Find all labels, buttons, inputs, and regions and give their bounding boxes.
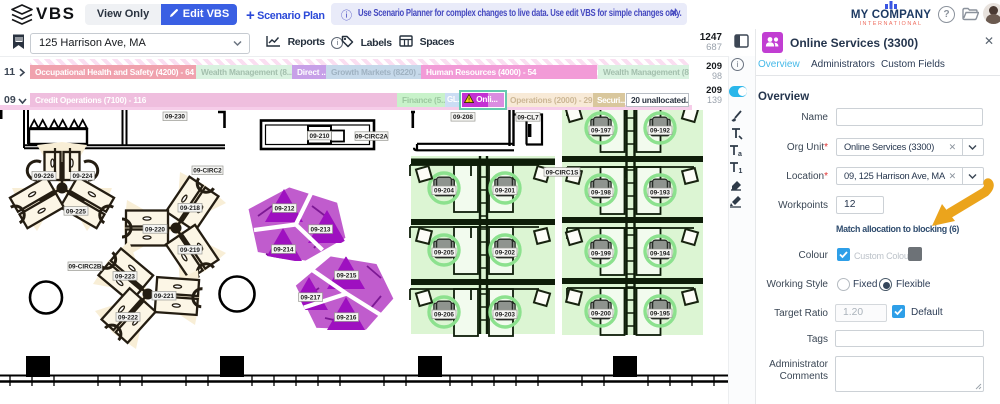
svg-text:09-201: 09-201 — [495, 188, 515, 195]
svg-text:09-226: 09-226 — [34, 173, 54, 180]
svg-text:09-198: 09-198 — [591, 190, 611, 197]
svg-text:09-CIRC2B: 09-CIRC2B — [68, 264, 101, 271]
svg-text:09-224: 09-224 — [73, 173, 93, 180]
svg-text:09-230: 09-230 — [165, 114, 185, 121]
svg-text:09-192: 09-192 — [650, 128, 670, 135]
svg-text:09-202: 09-202 — [495, 250, 515, 257]
svg-text:09-204: 09-204 — [434, 188, 454, 195]
svg-text:09-222: 09-222 — [118, 314, 138, 321]
svg-text:a: a — [738, 151, 742, 157]
svg-text:09-200: 09-200 — [591, 311, 611, 318]
svg-text:09-213: 09-213 — [311, 227, 331, 234]
svg-text:09-194: 09-194 — [650, 251, 670, 258]
svg-text:1: 1 — [739, 168, 743, 174]
svg-text:!: ! — [468, 97, 470, 103]
svg-text:09-CIRC2A: 09-CIRC2A — [355, 134, 388, 141]
svg-text:09-214: 09-214 — [274, 247, 294, 254]
svg-text:09-208: 09-208 — [453, 114, 473, 121]
svg-text:09-CIRC2: 09-CIRC2 — [193, 168, 222, 175]
svg-text:09-CL7: 09-CL7 — [517, 114, 539, 121]
svg-text:09-197: 09-197 — [591, 128, 611, 135]
svg-text:09-218: 09-218 — [180, 205, 200, 212]
svg-text:09-216: 09-216 — [337, 315, 357, 322]
svg-text:09-210: 09-210 — [310, 133, 330, 140]
svg-text:09-206: 09-206 — [434, 312, 454, 319]
svg-text:09-212: 09-212 — [275, 206, 295, 213]
svg-text:09-217: 09-217 — [301, 295, 321, 302]
svg-text:09-199: 09-199 — [591, 251, 611, 258]
svg-text:09-220: 09-220 — [145, 226, 165, 233]
svg-text:09-205: 09-205 — [434, 250, 454, 257]
svg-text:09-193: 09-193 — [650, 190, 670, 197]
svg-text:09-215: 09-215 — [337, 273, 357, 280]
svg-text:09-195: 09-195 — [650, 311, 670, 318]
svg-text:09-203: 09-203 — [495, 312, 515, 319]
svg-text:09-225: 09-225 — [66, 208, 86, 215]
svg-text:09-223: 09-223 — [115, 273, 135, 280]
svg-text:09-CIRC1S: 09-CIRC1S — [546, 169, 579, 176]
svg-text:09-221: 09-221 — [154, 293, 174, 300]
svg-text:09-219: 09-219 — [180, 247, 200, 254]
